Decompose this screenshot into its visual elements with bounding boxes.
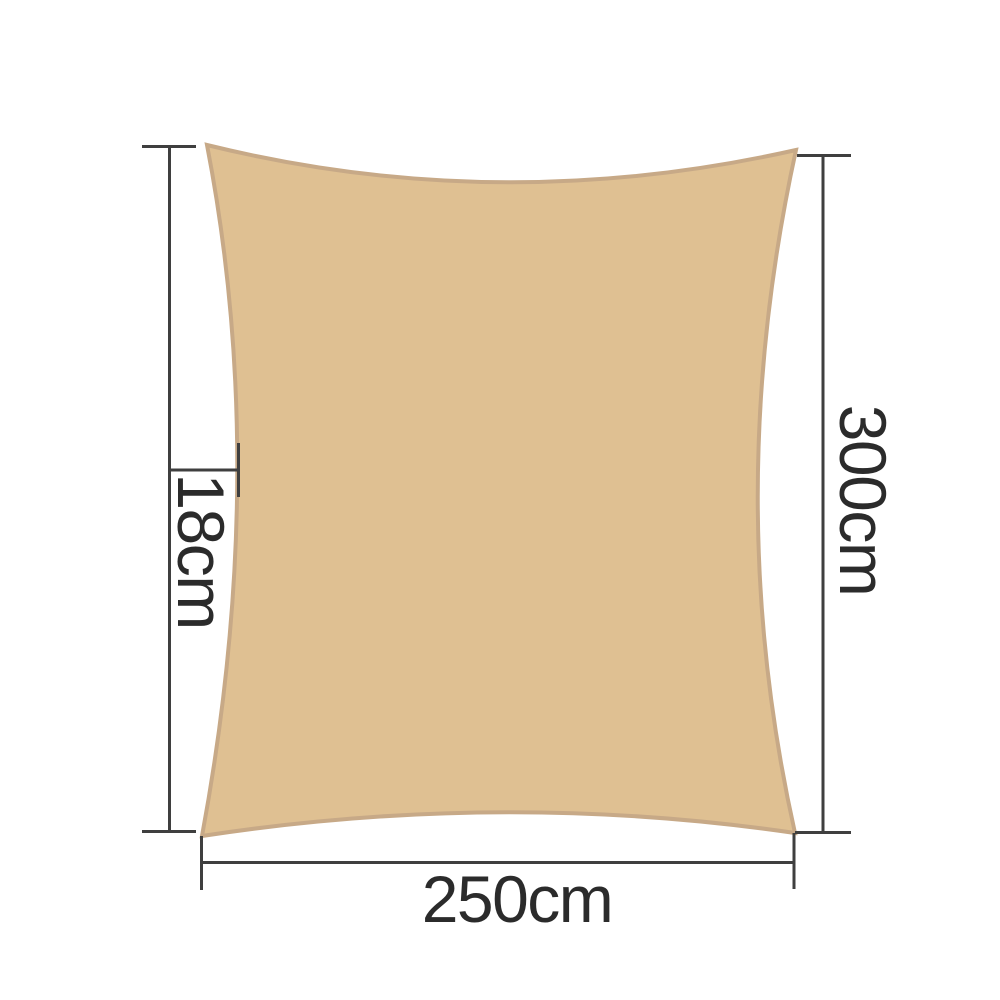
right-dimension-label: 300cm <box>826 405 900 596</box>
bottom-dimension-label: 250cm <box>422 862 613 936</box>
product-dimension-diagram: 18cm 300cm 250cm <box>0 0 1000 1000</box>
shade-sail-shape <box>202 145 796 836</box>
diagram-canvas: 18cm 300cm 250cm <box>0 0 1000 1000</box>
left-dimension-label: 18cm <box>164 473 238 628</box>
